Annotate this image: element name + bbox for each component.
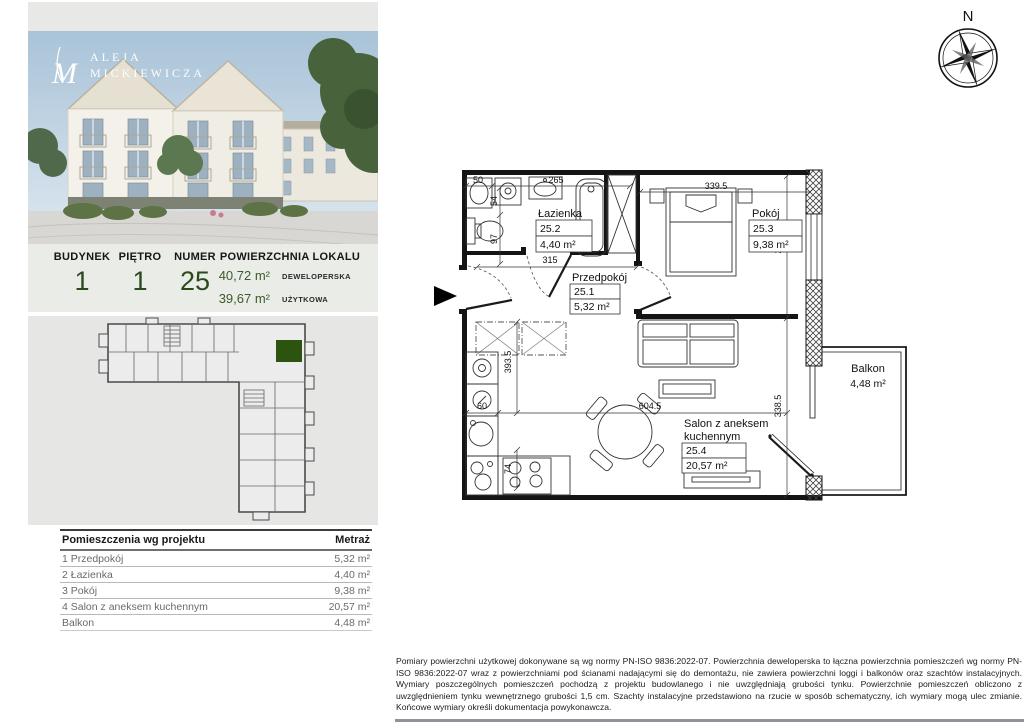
room-door-leaf (640, 297, 671, 310)
room-area: 4,48 m² (850, 378, 886, 390)
nightstand-icon (650, 189, 664, 203)
header-budynek: BUDYNEK (54, 251, 111, 263)
stove-icon (503, 458, 551, 494)
dim-label: 604.5 (639, 401, 662, 411)
balcony-door-glass (810, 366, 815, 418)
legal-disclaimer: Pomiary powierzchni użytkowej dokonywane… (396, 656, 1022, 714)
value-pietro: 1 (132, 266, 147, 297)
room-area: 4,40 m² (540, 239, 576, 251)
area-usable-value: 39,67 m² (198, 291, 270, 306)
highlighted-unit-marker (276, 340, 302, 362)
apartment-floor-plan: 50 265 339.5 54 97 315 280 338.5 393.5 6… (430, 148, 1024, 520)
dim-label: 97 (489, 234, 499, 244)
table-row: 4 Salon z aneksem kuchennym 20,57 m² (60, 599, 372, 615)
room-area: 20,57 m² (686, 460, 728, 472)
rooms-table-area-header: Metraż (335, 534, 370, 546)
room-area: 9,38 m² (753, 239, 789, 251)
header-powierzchnia: POWIERZCHNIA LOKALU (220, 251, 360, 263)
table-row: 2 Łazienka 4,40 m² (60, 567, 372, 583)
room-no: 25.2 (540, 223, 561, 235)
dim-label: 50 (473, 175, 483, 185)
area-developer-value: 40,72 m² (198, 268, 270, 283)
logo-line2: MICKIEWICZA (90, 66, 205, 80)
room-area: 20,57 m² (329, 601, 370, 613)
room-area: 5,32 m² (574, 301, 610, 313)
dim-label: 74 (503, 464, 513, 474)
footer-divider (395, 719, 1024, 722)
area-usable-label: UŻYTKOWA (282, 295, 328, 304)
header-pietro: PIĘTRO (119, 251, 162, 263)
table-row: Balkon 4,48 m² (60, 615, 372, 631)
room-name: 3 Pokój (62, 585, 97, 597)
floor-plan-drawing: 50 265 339.5 54 97 315 280 338.5 393.5 6… (430, 148, 1024, 520)
tv-cabinet-icon (684, 471, 760, 488)
room-name: 1 Przedpokój (62, 553, 123, 565)
appliance-icon (473, 359, 491, 377)
toilet-icon (466, 218, 475, 244)
room-name: 4 Salon z aneksem kuchennym (62, 601, 208, 613)
coffee-table-icon (659, 380, 715, 398)
value-budynek: 1 (74, 266, 89, 297)
room-area: 4,40 m² (334, 569, 370, 581)
logo-line1: ALEJA (90, 50, 142, 64)
dim-label: 315 (542, 255, 557, 265)
room-no: 25.3 (753, 223, 774, 235)
dim-label: 60 (477, 401, 487, 411)
room-area: 5,32 m² (334, 553, 370, 565)
compass-north-label: N (963, 8, 974, 25)
room-area: 9,38 m² (334, 585, 370, 597)
rooms-table: Pomieszczenia wg projektu Metraż 1 Przed… (60, 529, 372, 631)
rooms-table-header: Pomieszczenia wg projektu Metraż (60, 529, 372, 551)
room-name-przedpokoj: Przedpokój (572, 272, 627, 284)
room-name-balkon: Balkon (851, 363, 885, 375)
room-area: 4,48 m² (334, 617, 370, 629)
wardrobes (476, 322, 566, 355)
compass-rose: N (918, 6, 1014, 98)
floor-overview-plan (28, 316, 378, 525)
property-card-page: M ALEJA MICKIEWICZA BUDYNEK PIĘTRO NUMER… (0, 0, 1024, 724)
entrance-arrow-icon (434, 286, 457, 306)
area-developer-label: DEWELOPERSKA (282, 272, 351, 281)
balcony-door-leaf (769, 437, 811, 476)
building-render-photo: M ALEJA MICKIEWICZA (28, 31, 378, 244)
dim-label: 339.5 (705, 181, 728, 191)
room-name: Balkon (62, 617, 94, 629)
room-name-salon-2: kuchennym (684, 431, 740, 443)
table-row: 1 Przedpokój 5,32 m² (60, 551, 372, 567)
kitchen-fixtures (466, 352, 570, 495)
nightstand-icon (738, 189, 752, 203)
logo-monogram: M (51, 57, 79, 90)
installation-shaft (608, 175, 636, 253)
entrance-door-leaf (466, 300, 512, 309)
dim-label: 338.5 (773, 395, 783, 418)
room-name-lazienka: Łazienka (538, 208, 583, 220)
table-row: 3 Pokój 9,38 m² (60, 583, 372, 599)
rooms-table-title: Pomieszczenia wg projektu (62, 534, 205, 546)
bedroom-furniture (650, 188, 752, 276)
dim-label: 54 (489, 196, 499, 206)
header-numer: NUMER (174, 251, 216, 263)
dim-label: 393.5 (503, 351, 513, 374)
building-render-illustration: M ALEJA MICKIEWICZA (28, 31, 378, 244)
sofa-icon (638, 320, 738, 367)
floor-overview-panel (28, 316, 378, 525)
room-no: 25.4 (686, 445, 707, 457)
room-name-salon: Salon z aneksem (684, 418, 768, 430)
bed-icon (666, 188, 736, 276)
compass-icon: N (918, 6, 1014, 98)
room-name-pokoj: Pokój (752, 208, 780, 220)
room-name: 2 Łazienka (62, 569, 113, 581)
room-no: 25.1 (574, 286, 595, 298)
dim-label: 265 (548, 175, 563, 185)
unit-info-panel: BUDYNEK PIĘTRO NUMER POWIERZCHNIA LOKALU… (28, 244, 378, 312)
header-strip (28, 2, 378, 31)
window (806, 214, 822, 280)
room-labels: Łazienka 25.2 4,40 m² Przedpokój 25.1 5,… (536, 208, 886, 473)
